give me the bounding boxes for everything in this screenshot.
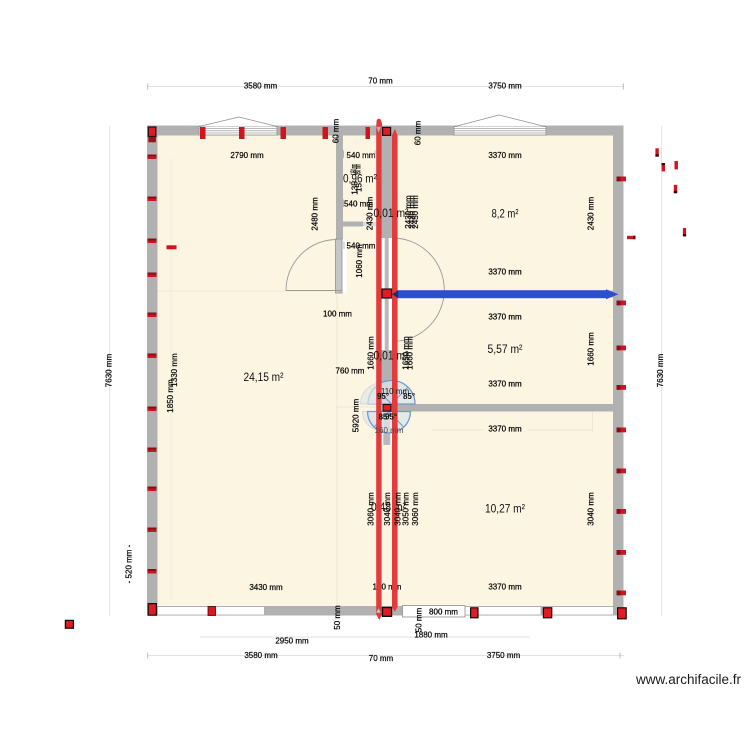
svg-text:2450 mm: 2450 mm [411, 195, 420, 229]
svg-text:70 mm: 70 mm [369, 654, 394, 663]
svg-text:3370 mm: 3370 mm [488, 583, 522, 592]
svg-text:50 mm: 50 mm [415, 607, 424, 632]
svg-text:3370 mm: 3370 mm [488, 268, 522, 277]
svg-text:3060 mm: 3060 mm [367, 492, 376, 526]
svg-text:5,57 m²: 5,57 m² [488, 342, 523, 356]
svg-text:3370 mm: 3370 mm [488, 151, 522, 160]
svg-text:1330 mm: 1330 mm [170, 353, 179, 387]
svg-text:350 mm: 350 mm [354, 164, 363, 175]
svg-text:2950 mm: 2950 mm [275, 637, 309, 646]
svg-text:2430 mm: 2430 mm [587, 196, 596, 230]
svg-text:1660 mm: 1660 mm [406, 336, 415, 370]
svg-text:60 mm: 60 mm [414, 120, 423, 145]
svg-text:3430 mm: 3430 mm [249, 583, 283, 592]
svg-text:3060 mm: 3060 mm [411, 492, 420, 526]
svg-text:540 mm: 540 mm [347, 151, 376, 160]
svg-text:70 mm: 70 mm [368, 77, 393, 86]
svg-text:2790 mm: 2790 mm [230, 151, 264, 160]
svg-text:3750 mm: 3750 mm [487, 651, 521, 660]
svg-text:2480 mm: 2480 mm [311, 197, 320, 231]
svg-text:800 mm: 800 mm [429, 608, 458, 617]
svg-text:1060 mm: 1060 mm [355, 244, 364, 278]
svg-text:3370 mm: 3370 mm [488, 380, 522, 389]
svg-text:100 mm: 100 mm [323, 310, 352, 319]
svg-text:10,27 m²: 10,27 m² [485, 502, 525, 516]
svg-text:1660 mm: 1660 mm [587, 332, 596, 366]
svg-text:www.archifacile.fr: www.archifacile.fr [635, 672, 742, 687]
svg-text:2430 mm: 2430 mm [366, 196, 375, 230]
svg-text:3040 mm: 3040 mm [383, 492, 392, 526]
svg-text:3050 mm: 3050 mm [402, 492, 411, 526]
svg-text:3370 mm: 3370 mm [488, 425, 522, 434]
svg-text:1660 mm: 1660 mm [367, 336, 376, 370]
svg-text:3040 mm: 3040 mm [587, 492, 596, 526]
svg-text:7630 mm: 7630 mm [105, 353, 114, 387]
svg-text:7630 mm: 7630 mm [656, 353, 665, 387]
svg-text:760 mm: 760 mm [336, 367, 365, 376]
svg-text:- 520 mm -: - 520 mm - [125, 544, 134, 583]
svg-text:1880 mm: 1880 mm [414, 631, 448, 640]
svg-text:5920 mm: 5920 mm [352, 398, 361, 432]
svg-text:3580 mm: 3580 mm [244, 82, 278, 91]
svg-text:15: 15 [355, 183, 364, 192]
svg-text:95°: 95° [385, 413, 397, 422]
svg-text:8,2 m²: 8,2 m² [492, 207, 519, 221]
svg-text:3580 mm: 3580 mm [244, 651, 278, 660]
svg-text:3370 mm: 3370 mm [488, 313, 522, 322]
svg-text:60 mm: 60 mm [332, 118, 341, 143]
svg-text:24,15 m²: 24,15 m² [244, 370, 284, 384]
svg-text:50 mm: 50 mm [333, 605, 342, 630]
svg-text:110 mm: 110 mm [381, 387, 410, 396]
svg-text:3750 mm: 3750 mm [488, 82, 522, 91]
svg-text:160 mm: 160 mm [375, 426, 404, 435]
